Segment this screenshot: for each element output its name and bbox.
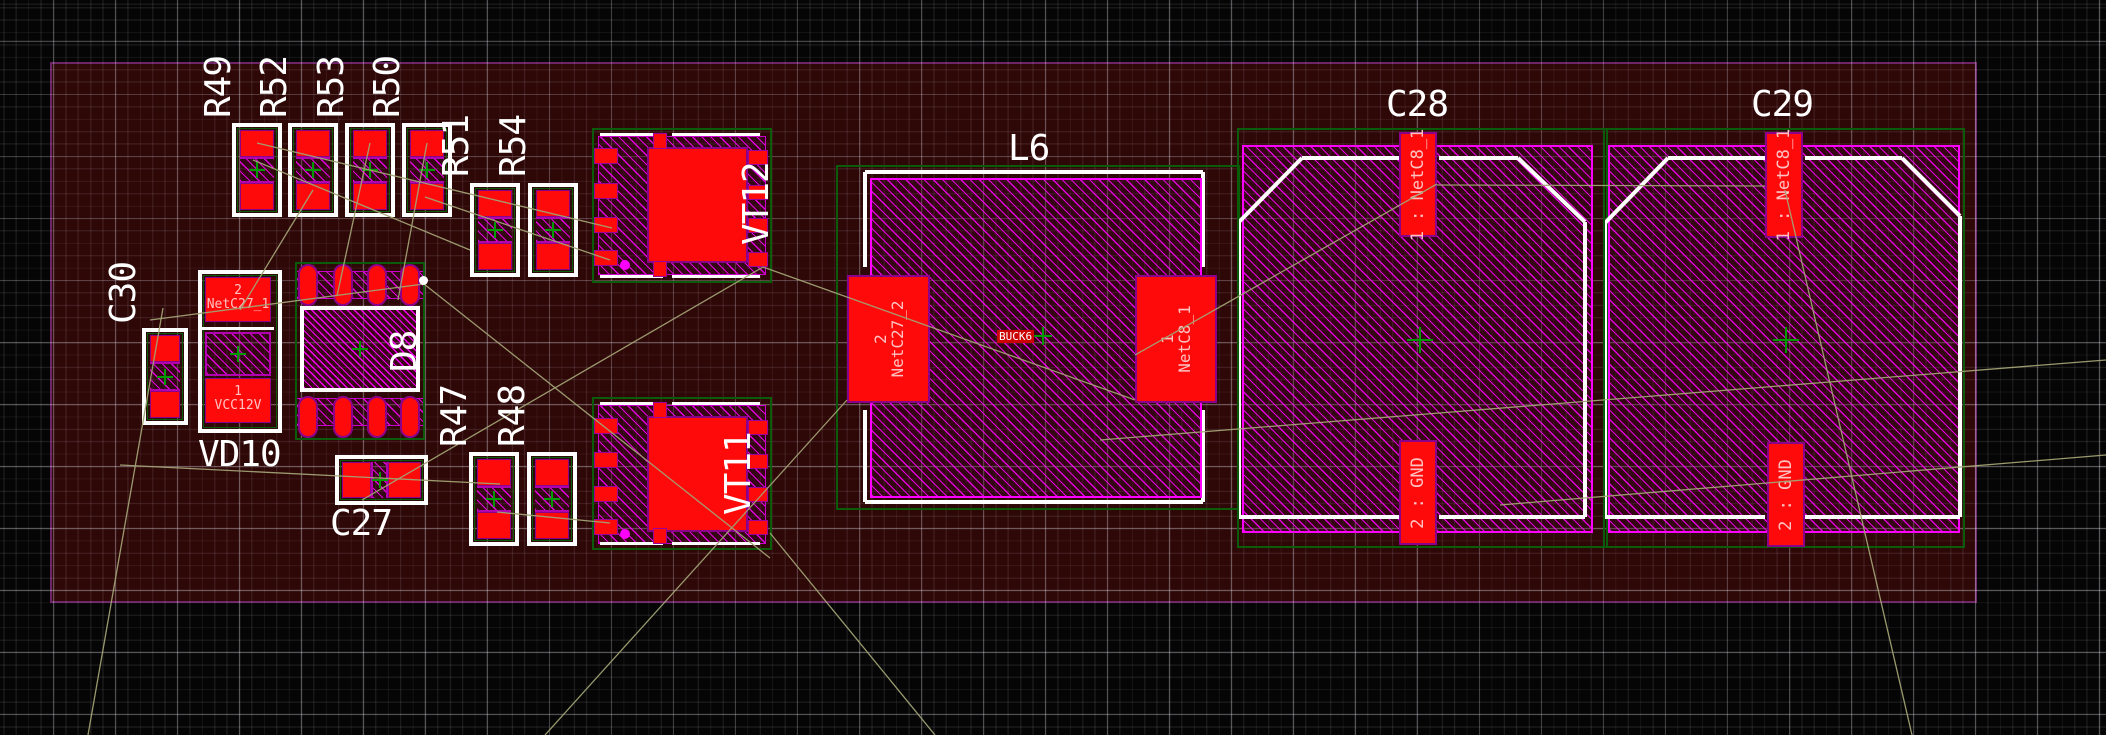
pad[interactable]	[296, 183, 330, 210]
refdes-r47[interactable]: R47	[436, 385, 474, 447]
pad[interactable]	[594, 452, 618, 468]
pad[interactable]	[535, 512, 569, 539]
pad-tab[interactable]	[653, 528, 667, 544]
pad-net-name: NetC27_1	[206, 298, 270, 312]
pad[interactable]	[594, 183, 618, 199]
refdes-r50[interactable]: R50	[369, 56, 407, 118]
pad-tab-large[interactable]	[647, 147, 748, 263]
pad-number: 1	[206, 385, 270, 399]
refdes-vd10[interactable]: VD10	[198, 436, 281, 474]
pad[interactable]	[536, 243, 570, 270]
pad[interactable]	[477, 512, 511, 539]
pad-2-gnd[interactable]: 2 : GND	[1399, 440, 1437, 545]
pad[interactable]	[388, 462, 421, 498]
pad[interactable]	[536, 190, 570, 217]
silkscreen-line	[672, 133, 760, 136]
origin-cross	[1034, 327, 1052, 345]
component-body	[371, 462, 388, 498]
pad[interactable]	[367, 396, 387, 438]
pad-1-netc8_1[interactable]: 1 : NetC8_1	[1765, 132, 1803, 238]
pad-tab[interactable]	[653, 133, 667, 149]
pad[interactable]	[298, 396, 318, 438]
pad-tab[interactable]	[748, 520, 768, 535]
pad-tab[interactable]	[653, 402, 667, 418]
pad[interactable]	[240, 130, 274, 157]
pad-net-name: 1 : NetC8_1	[1408, 128, 1428, 241]
pad-2-gnd[interactable]: 2 : GND	[1767, 442, 1805, 547]
component-r47[interactable]	[469, 452, 519, 546]
component-r52[interactable]	[288, 123, 338, 217]
pad[interactable]	[477, 459, 511, 486]
silkscreen-line	[672, 275, 760, 278]
pad[interactable]	[353, 130, 387, 157]
component-c29[interactable]: 1 : NetC8_1 2 : GND	[1603, 128, 1965, 548]
pin1-marker-dot	[620, 260, 630, 270]
pad[interactable]	[410, 183, 444, 210]
pad[interactable]	[478, 190, 512, 217]
component-body	[535, 486, 569, 512]
refdes-d8[interactable]: D8	[386, 331, 424, 372]
refdes-c27[interactable]: C27	[330, 505, 392, 543]
refdes-vt12[interactable]: VT12	[738, 162, 776, 245]
component-c28[interactable]: 1 : NetC8_1 2 : GND	[1237, 128, 1608, 548]
pad[interactable]	[535, 459, 569, 486]
pad[interactable]	[240, 183, 274, 210]
pad-1-netc8_1[interactable]: 1 NetC8_1	[1135, 275, 1217, 403]
silkscreen-line	[672, 542, 760, 545]
pad[interactable]	[298, 264, 318, 306]
pin1-marker-dot	[620, 529, 630, 539]
pad-1-netc8_1[interactable]: 1 : NetC8_1	[1399, 132, 1437, 237]
component-body	[240, 157, 274, 183]
refdes-r48[interactable]: R48	[494, 385, 532, 447]
pad-net-name: NetC8_1	[1176, 305, 1193, 372]
pad-net-name: VCC12V	[206, 399, 270, 413]
pad-number: 2	[872, 300, 889, 377]
refdes-r52[interactable]: R52	[256, 56, 294, 118]
refdes-r49[interactable]: R49	[200, 56, 238, 118]
refdes-c29[interactable]: C29	[1751, 86, 1813, 124]
pad[interactable]	[594, 486, 618, 502]
pad[interactable]	[296, 130, 330, 157]
pad-2-netc27_1[interactable]: 2 NetC27_1	[205, 277, 271, 322]
component-body	[353, 157, 387, 183]
component-c30[interactable]	[142, 328, 188, 425]
refdes-c28[interactable]: C28	[1386, 86, 1448, 124]
pad[interactable]	[367, 264, 387, 306]
component-c27[interactable]	[335, 455, 428, 505]
pad[interactable]	[400, 396, 420, 438]
pad-tab[interactable]	[653, 261, 667, 277]
pad[interactable]	[400, 264, 420, 306]
pad[interactable]	[353, 183, 387, 210]
component-body	[296, 157, 330, 183]
component-body	[478, 217, 512, 243]
component-r51[interactable]	[470, 183, 520, 277]
pad[interactable]	[150, 335, 180, 362]
pad[interactable]	[594, 519, 618, 535]
pad[interactable]	[594, 217, 618, 233]
pad[interactable]	[333, 396, 353, 438]
pad[interactable]	[594, 250, 618, 266]
refdes-vt11[interactable]: VT11	[720, 432, 758, 515]
pcb-canvas[interactable]: 2 NetC27_1 1 VCC12V	[0, 0, 2106, 735]
pad-number: 1	[1159, 305, 1176, 372]
pad[interactable]	[594, 148, 618, 164]
component-r53[interactable]	[345, 123, 395, 217]
component-r54[interactable]	[528, 183, 578, 277]
pad-number: 2	[206, 284, 270, 298]
pad-net-name: 1 : NetC8_1	[1774, 129, 1794, 242]
pad[interactable]	[478, 243, 512, 270]
pin1-marker-dot	[419, 276, 428, 285]
pad[interactable]	[342, 462, 371, 498]
silkscreen-line	[202, 327, 274, 330]
component-body	[205, 332, 271, 376]
pad-tab[interactable]	[748, 252, 768, 267]
pad-net-name: 2 : GND	[1408, 457, 1428, 529]
refdes-c30[interactable]: C30	[105, 262, 143, 324]
refdes-r53[interactable]: R53	[313, 56, 351, 118]
pad-2-netc27_2[interactable]: 2 NetC27_2	[847, 275, 930, 403]
refdes-r51[interactable]: R51	[438, 115, 476, 177]
component-body	[477, 486, 511, 512]
component-body	[536, 217, 570, 243]
pad[interactable]	[594, 418, 618, 434]
component-body	[150, 362, 180, 391]
silkscreen-line	[672, 402, 760, 405]
pad-net-name: NetC27_2	[889, 300, 906, 377]
refdes-r54[interactable]: R54	[495, 115, 533, 177]
refdes-l6[interactable]: L6	[1008, 130, 1049, 168]
pad[interactable]	[150, 391, 180, 418]
component-l6[interactable]: 2 NetC27_2 1 NetC8_1 BUCK6	[836, 165, 1240, 510]
pad-net-name: 2 : GND	[1776, 459, 1796, 531]
component-vd10[interactable]: 2 NetC27_1 1 VCC12V	[198, 270, 282, 433]
component-r48[interactable]	[527, 452, 577, 546]
pad[interactable]	[333, 264, 353, 306]
component-r49[interactable]	[232, 123, 282, 217]
net-label-buck6[interactable]: BUCK6	[997, 330, 1034, 343]
pad-1-vcc12v[interactable]: 1 VCC12V	[205, 378, 271, 423]
